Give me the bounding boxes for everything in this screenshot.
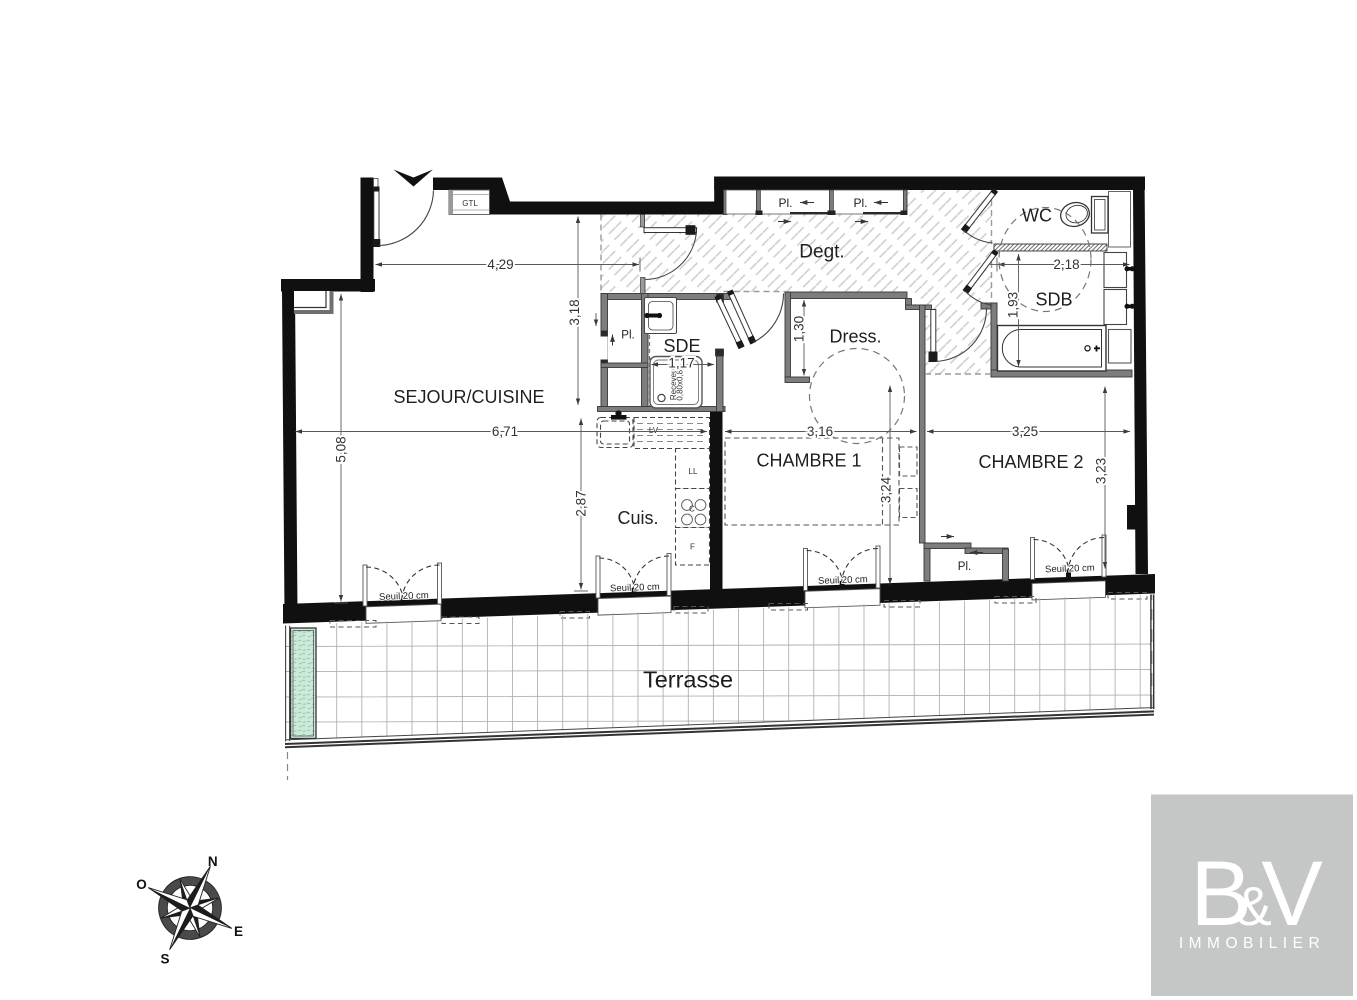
svg-text:CHAMBRE 1: CHAMBRE 1 — [756, 451, 861, 471]
svg-text:WC: WC — [1022, 206, 1052, 226]
svg-text:S: S — [161, 952, 170, 967]
svg-text:Pl.: Pl. — [958, 561, 971, 573]
svg-text:E: E — [234, 924, 243, 939]
svg-text:3,23: 3,23 — [1094, 458, 1109, 484]
svg-text:SDE: SDE — [663, 336, 700, 356]
svg-text:3,18: 3,18 — [567, 299, 582, 325]
svg-text:Seuil 20 cm: Seuil 20 cm — [818, 574, 868, 587]
svg-text:6,71: 6,71 — [492, 424, 518, 439]
svg-text:1,93: 1,93 — [1006, 292, 1021, 318]
svg-text:5,08: 5,08 — [334, 436, 349, 462]
svg-text:1,17: 1,17 — [668, 356, 694, 371]
svg-text:Terrasse: Terrasse — [643, 667, 733, 693]
svg-text:2,87: 2,87 — [574, 490, 589, 516]
svg-text:CHAMBRE 2: CHAMBRE 2 — [978, 452, 1083, 472]
svg-text:LV: LV — [649, 426, 659, 435]
svg-text:SDB: SDB — [1035, 290, 1072, 310]
svg-text:Dress.: Dress. — [829, 327, 881, 347]
svg-text:Seuil 20 cm: Seuil 20 cm — [379, 590, 429, 603]
svg-text:4,29: 4,29 — [487, 257, 513, 272]
svg-text:2,18: 2,18 — [1053, 257, 1079, 272]
svg-text:F: F — [690, 543, 695, 552]
svg-text:Pl.: Pl. — [621, 330, 634, 342]
svg-text:Seuil 20 cm: Seuil 20 cm — [610, 582, 660, 595]
svg-text:N: N — [208, 854, 218, 869]
svg-text:3,24: 3,24 — [879, 476, 894, 503]
svg-text:1,30: 1,30 — [792, 316, 807, 342]
svg-text:Pl.: Pl. — [853, 196, 867, 210]
svg-text:C: C — [689, 505, 695, 514]
svg-text:Cuis.: Cuis. — [617, 508, 658, 528]
svg-text:V: V — [1261, 843, 1322, 945]
svg-text:GTL: GTL — [462, 199, 478, 208]
svg-text:LL: LL — [689, 467, 698, 476]
svg-text:3,16: 3,16 — [807, 424, 833, 439]
svg-text:Seuil 20 cm: Seuil 20 cm — [1045, 563, 1095, 576]
svg-text:O: O — [136, 877, 147, 892]
svg-text:IMMOBILIER: IMMOBILIER — [1179, 935, 1325, 952]
svg-text:3,25: 3,25 — [1012, 424, 1038, 439]
svg-text:Pl.: Pl. — [778, 196, 792, 210]
svg-text:SEJOUR/CUISINE: SEJOUR/CUISINE — [393, 387, 544, 407]
svg-text:Degt.: Degt. — [799, 242, 844, 263]
